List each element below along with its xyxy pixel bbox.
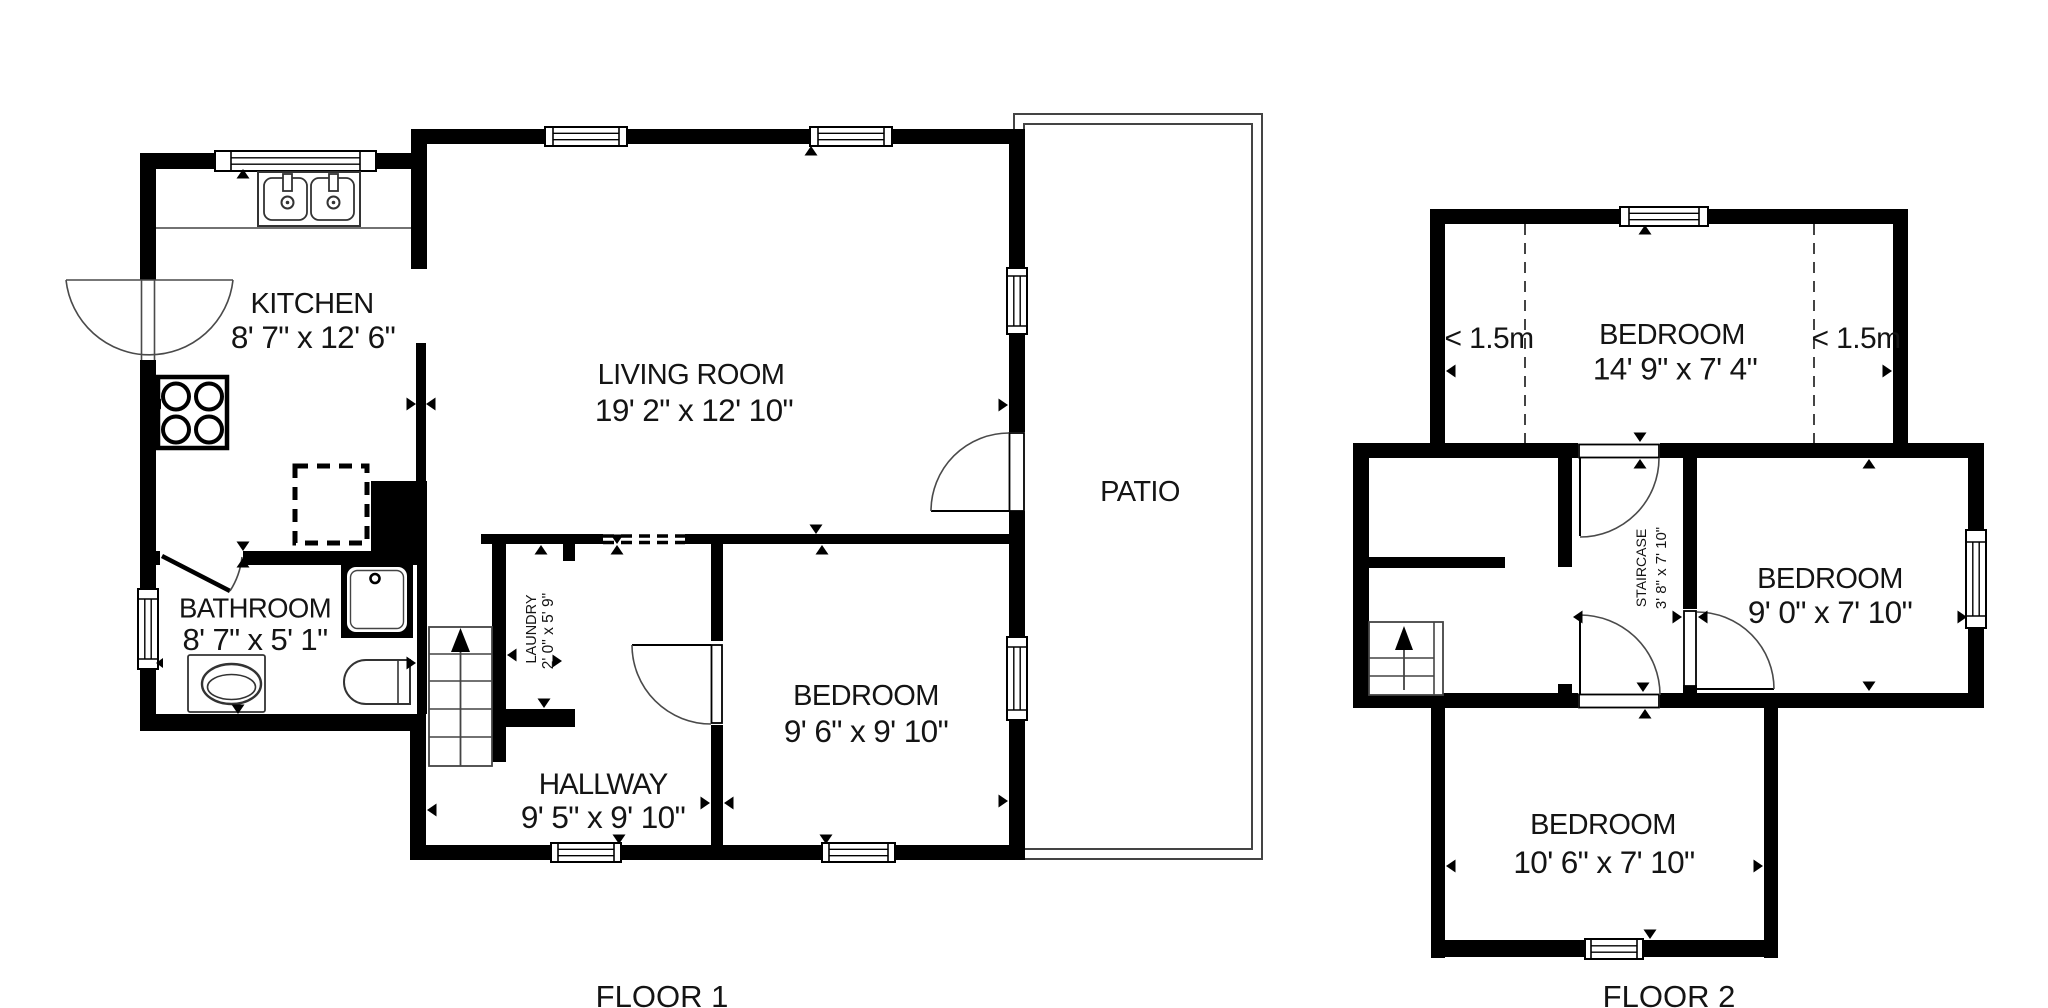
svg-text:9' 0" x 7' 10": 9' 0" x 7' 10" <box>1748 594 1912 630</box>
svg-text:HALLWAY: HALLWAY <box>539 768 669 801</box>
svg-text:BEDROOM: BEDROOM <box>1530 809 1676 841</box>
svg-text:LAUNDRY: LAUNDRY <box>524 594 540 663</box>
svg-text:BEDROOM: BEDROOM <box>1599 319 1745 351</box>
svg-text:BEDROOM: BEDROOM <box>793 680 939 712</box>
svg-text:< 1.5m: < 1.5m <box>1812 322 1901 355</box>
svg-text:FLOOR 1: FLOOR 1 <box>596 979 729 1008</box>
svg-text:8' 7" x 12' 6": 8' 7" x 12' 6" <box>231 319 395 355</box>
svg-text:FLOOR 2: FLOOR 2 <box>1603 979 1736 1008</box>
svg-text:LIVING ROOM: LIVING ROOM <box>598 359 785 391</box>
svg-text:KITCHEN: KITCHEN <box>250 288 373 320</box>
svg-text:BATHROOM: BATHROOM <box>179 593 331 624</box>
svg-text:3' 8" x 7' 10": 3' 8" x 7' 10" <box>1653 527 1670 609</box>
svg-text:9' 6" x 9' 10": 9' 6" x 9' 10" <box>784 713 948 749</box>
svg-text:9' 5" x 9' 10": 9' 5" x 9' 10" <box>521 799 685 835</box>
svg-text:8' 7" x 5' 1": 8' 7" x 5' 1" <box>183 622 328 657</box>
svg-text:PATIO: PATIO <box>1100 476 1180 508</box>
svg-text:BEDROOM: BEDROOM <box>1757 563 1903 595</box>
svg-text:STAIRCASE: STAIRCASE <box>1633 529 1649 607</box>
svg-text:14' 9" x 7' 4": 14' 9" x 7' 4" <box>1593 351 1757 387</box>
svg-text:10' 6" x 7' 10": 10' 6" x 7' 10" <box>1513 844 1694 880</box>
svg-text:2' 0" x 5' 9": 2' 0" x 5' 9" <box>540 593 557 669</box>
svg-text:< 1.5m: < 1.5m <box>1445 322 1534 355</box>
svg-text:19' 2" x 12' 10": 19' 2" x 12' 10" <box>595 392 793 428</box>
